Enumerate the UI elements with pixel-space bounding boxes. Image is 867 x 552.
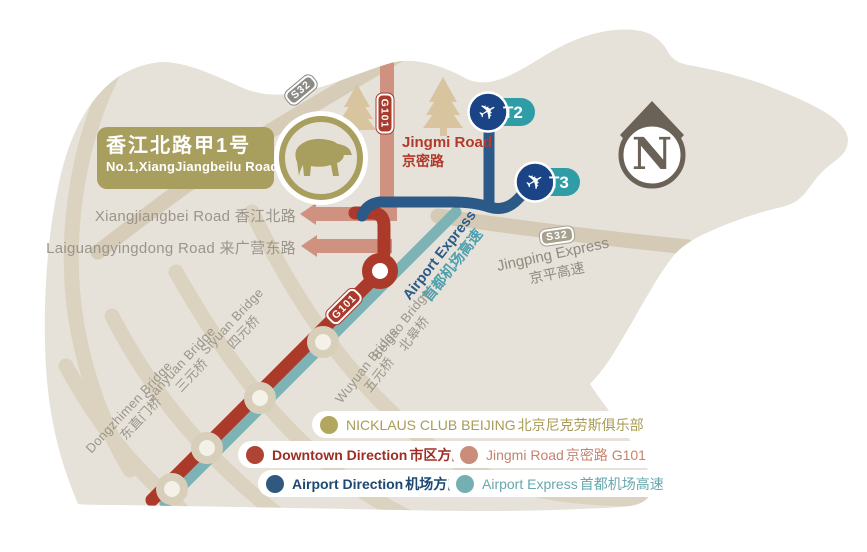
legend-item-airport-direction: Airport Direction机场方向 bbox=[258, 470, 475, 497]
compass-letter: N bbox=[627, 130, 677, 180]
t3-label: T3 bbox=[549, 173, 569, 193]
nicklaus-club-dot bbox=[320, 416, 338, 434]
beigao-interchange-ring bbox=[367, 258, 393, 284]
legend-item-nicklaus-club: NICKLAUS CLUB BEIJING北京尼克劳斯俱乐部 bbox=[312, 411, 658, 438]
jingmi-road-dot bbox=[460, 446, 478, 464]
jingmi-road-label: Jingmi Road 京密路 bbox=[402, 135, 492, 171]
legend-item-airport-express: Airport Express首都机场高速 bbox=[448, 470, 678, 497]
g101-badge-north: G101 bbox=[377, 94, 394, 134]
map-canvas: 香江北路甲1号 No.1,XiangJiangbeilu Road Jingmi… bbox=[0, 0, 867, 552]
laiguangyingdong-road-label: Laiguangyingdong Road 来广营东路 bbox=[36, 237, 296, 258]
club-logo bbox=[278, 115, 364, 201]
destination-address-en: No.1,XiangJiangbeilu Road bbox=[106, 159, 279, 174]
t2-label: T2 bbox=[503, 103, 523, 123]
legend-item-jingmi-road: Jingmi Road京密路 G101 bbox=[452, 441, 660, 468]
destination-address: 香江北路甲1号 No.1,XiangJiangbeilu Road bbox=[106, 133, 279, 174]
downtown-direction-dot bbox=[246, 446, 264, 464]
xiangjiangbei-road-label: Xiangjiangbei Road 香江北路 bbox=[56, 205, 296, 226]
legend-item-downtown-direction: Downtown Direction市区方向 bbox=[238, 441, 479, 468]
airport-express-dot bbox=[456, 475, 474, 493]
destination-address-zh: 香江北路甲1号 bbox=[106, 133, 279, 159]
airport-direction-dot bbox=[266, 475, 284, 493]
